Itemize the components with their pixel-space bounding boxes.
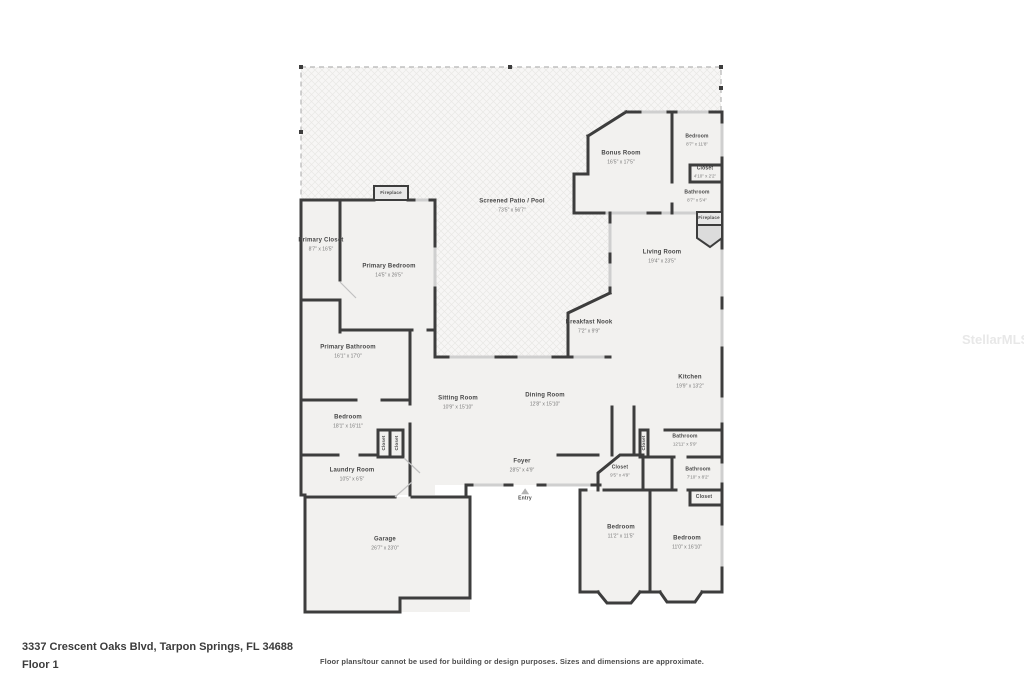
fireplace-top-shape — [374, 186, 408, 200]
floor-plan-page: Screened Patio / Pool73'5" x 56'7"Bonus … — [0, 0, 1024, 682]
floor-plan-drawing — [0, 0, 1024, 682]
footer-disclaimer: Floor plans/tour cannot be used for buil… — [0, 657, 1024, 666]
fireplace-right-shape — [697, 212, 722, 247]
footer-address: 3337 Crescent Oaks Blvd, Tarpon Springs,… — [22, 641, 293, 653]
watermark: StellarMLS — [962, 332, 1024, 347]
